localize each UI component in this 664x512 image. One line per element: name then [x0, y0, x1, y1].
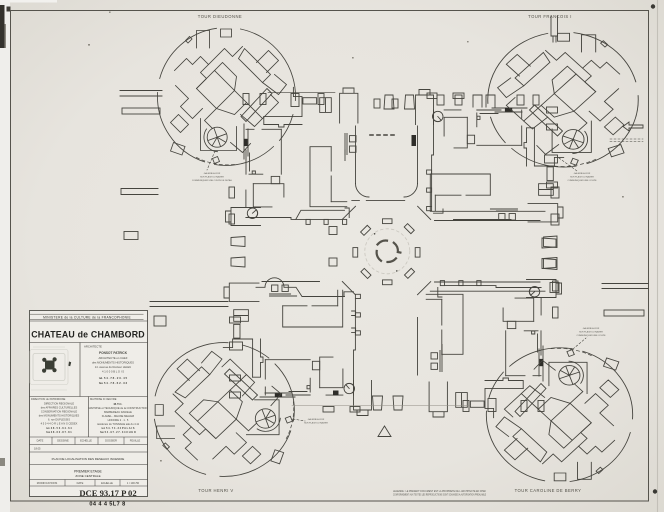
svg-text:HONORE 2 . 1 . 5: HONORE 2 . 1 . 5	[108, 418, 129, 422]
svg-text:GALERIE A VOIR: GALERIE A VOIR	[308, 418, 325, 421]
svg-text:ECHELLE: ECHELLE	[101, 481, 113, 485]
svg-text:tel. 5 4 . 7 8 . 2 3 . 4 5: tel. 5 4 . 7 8 . 2 3 . 4 5	[99, 376, 128, 380]
svg-text:GALERIE A VOIR: GALERIE A VOIR	[574, 172, 591, 175]
svg-text:MODIFICATIONS: MODIFICATIONS	[37, 481, 58, 485]
svg-text:SUR PLACE DU RADIER: SUR PLACE DU RADIER	[579, 331, 603, 334]
svg-text:4 5 0 4 4 O R L E A N S CE: 4 5 0 4 4 O R L E A N S CEDEX	[41, 422, 78, 426]
svg-text:DESSINE: DESSINE	[57, 439, 69, 443]
svg-text:SUR PLACE DU RADIER: SUR PLACE DU RADIER	[304, 422, 328, 425]
svg-text:des MONUMENTS HISTORIQUES: des MONUMENTS HISTORIQUES	[39, 414, 80, 418]
svg-text:4 1 0 0 0 B L O I S: 4 1 0 0 0 B L O I S	[102, 370, 124, 374]
svg-text:M.T.C.: M.T.C.	[114, 402, 123, 406]
svg-text:residence du TONNAGE aile: residence du TONNAGE aile du 4.11	[97, 422, 140, 426]
svg-text:COMMUNIQUER UNE COUPE: COMMUNIQUER UNE COUPE	[567, 180, 597, 182]
svg-text:LEGENDE : LE PRESENT DOCU: LEGENDE : LE PRESENT DOCUMENT EST LA PRO…	[393, 490, 486, 493]
svg-text:ECHELLE: ECHELLE	[80, 439, 92, 443]
svg-text:CONFORMEMENT AUX TEXTES LES RE: CONFORMEMENT AUX TEXTES LES REPRODUCTION…	[393, 494, 486, 497]
svg-text:CHATEAU de CHAMBORD: CHATEAU de CHAMBORD	[31, 330, 145, 340]
svg-text:FLAMEL - MEUNE MEHARI: FLAMEL - MEUNE MEHARI	[102, 414, 135, 418]
svg-text:DATE: DATE	[77, 481, 84, 485]
svg-text:tel. 3 8 . 5 3 . 6 4 . 6 4: tel. 3 8 . 5 3 . 6 4 . 6 4	[46, 426, 72, 430]
svg-text:TOUR HENRI V: TOUR HENRI V	[198, 488, 233, 493]
svg-text:COMMUNIQUER UNE COUPE: COMMUNIQUER UNE COUPE	[576, 335, 606, 337]
svg-text:PREMIER ETAGE: PREMIER ETAGE	[74, 470, 102, 474]
svg-text:ARCHITECTE en CHEF: ARCHITECTE en CHEF	[99, 356, 128, 360]
svg-text:MAITRISE et TECHNIQUE de l: MAITRISE et TECHNIQUE de la CONSTRUCTION	[88, 406, 147, 410]
svg-text:fax 5 4 . 7 8 . 6 2 . 3 3: fax 5 4 . 7 8 . 6 2 . 3 3	[99, 381, 128, 385]
svg-text:04 4 4 5L7 8: 04 4 4 5L7 8	[89, 502, 125, 508]
svg-text:DIRECTION du PATRIMOINE: DIRECTION du PATRIMOINE	[31, 397, 66, 401]
svg-text:TOUR DIEUDONNE: TOUR DIEUDONNE	[198, 14, 242, 19]
svg-text:ZONE CENTRALE: ZONE CENTRALE	[75, 474, 100, 478]
svg-text:DOSSIER: DOSSIER	[105, 439, 117, 443]
svg-text:BARBEREAU DANIELE: BARBEREAU DANIELE	[104, 410, 132, 414]
svg-text:GALERIE A VOIR: GALERIE A VOIR	[583, 327, 600, 330]
svg-text:DATE: DATE	[37, 439, 44, 443]
svg-text:14. avenue du Recteur LELE: 14. avenue du Recteur LELEU	[95, 365, 132, 369]
svg-text:CONSERVATION REGIONALE: CONSERVATION REGIONALE	[41, 410, 77, 414]
svg-text:TOUR CAROLINE DE BERRY: TOUR CAROLINE DE BERRY	[515, 488, 582, 493]
svg-text:des AFFAIRES CULTURELLES: des AFFAIRES CULTURELLES	[41, 406, 78, 410]
svg-text:18.05: 18.05	[34, 447, 41, 451]
svg-text:COMMUNIQUER UNE COUPE DE D: COMMUNIQUER UNE COUPE DE DETAIL	[192, 179, 233, 182]
svg-text:fax 3 8 . 6 2 . 8 7 . 8 1: fax 3 8 . 6 2 . 8 7 . 8 1	[46, 430, 72, 434]
svg-text:TOUR FRANCOIS I: TOUR FRANCOIS I	[528, 14, 572, 19]
svg-text:DCE 93.17 P 02: DCE 93.17 P 02	[79, 488, 136, 498]
svg-text:PONSOT PATRICK: PONSOT PATRICK	[99, 351, 128, 355]
svg-text:des MONUMENTS HISTORIQUES: des MONUMENTS HISTORIQUES	[92, 361, 134, 365]
svg-text:tel. 5 4 . 7 4 . 3 4 P A L: tel. 5 4 . 7 4 . 3 4 P A L A I S	[102, 426, 135, 430]
svg-text:6. rue DUPLESSIS: 6. rue DUPLESSIS	[48, 418, 70, 422]
svg-text:PLAN DE LOCALISATION DES R: PLAN DE LOCALISATION DES RESEAUX INCENDI…	[52, 457, 125, 461]
svg-text:fax 5 4 . 9 7 . 2 7 . 3 4 C: fax 5 4 . 9 7 . 2 7 . 3 4 C H E O	[100, 430, 136, 434]
svg-text:DIRECTION REGIONALE: DIRECTION REGIONALE	[44, 402, 74, 406]
svg-text:SUR PLACE DU RADIER: SUR PLACE DU RADIER	[570, 176, 594, 179]
svg-text:GALERIE A VOIR: GALERIE A VOIR	[204, 172, 221, 175]
svg-text:FEUILLE: FEUILLE	[130, 439, 141, 443]
svg-text:ARCHITECTE: ARCHITECTE	[84, 345, 102, 349]
svg-text:SUR PLACE DU RADIER: SUR PLACE DU RADIER	[200, 176, 224, 179]
svg-text:MINISTERE de la CULTURE de: MINISTERE de la CULTURE de la FRANCOPHON…	[43, 315, 131, 319]
svg-text:1 / 100 /50: 1 / 100 /50	[127, 481, 140, 485]
svg-text:MAITRISE D OEUVRE: MAITRISE D OEUVRE	[90, 397, 117, 401]
